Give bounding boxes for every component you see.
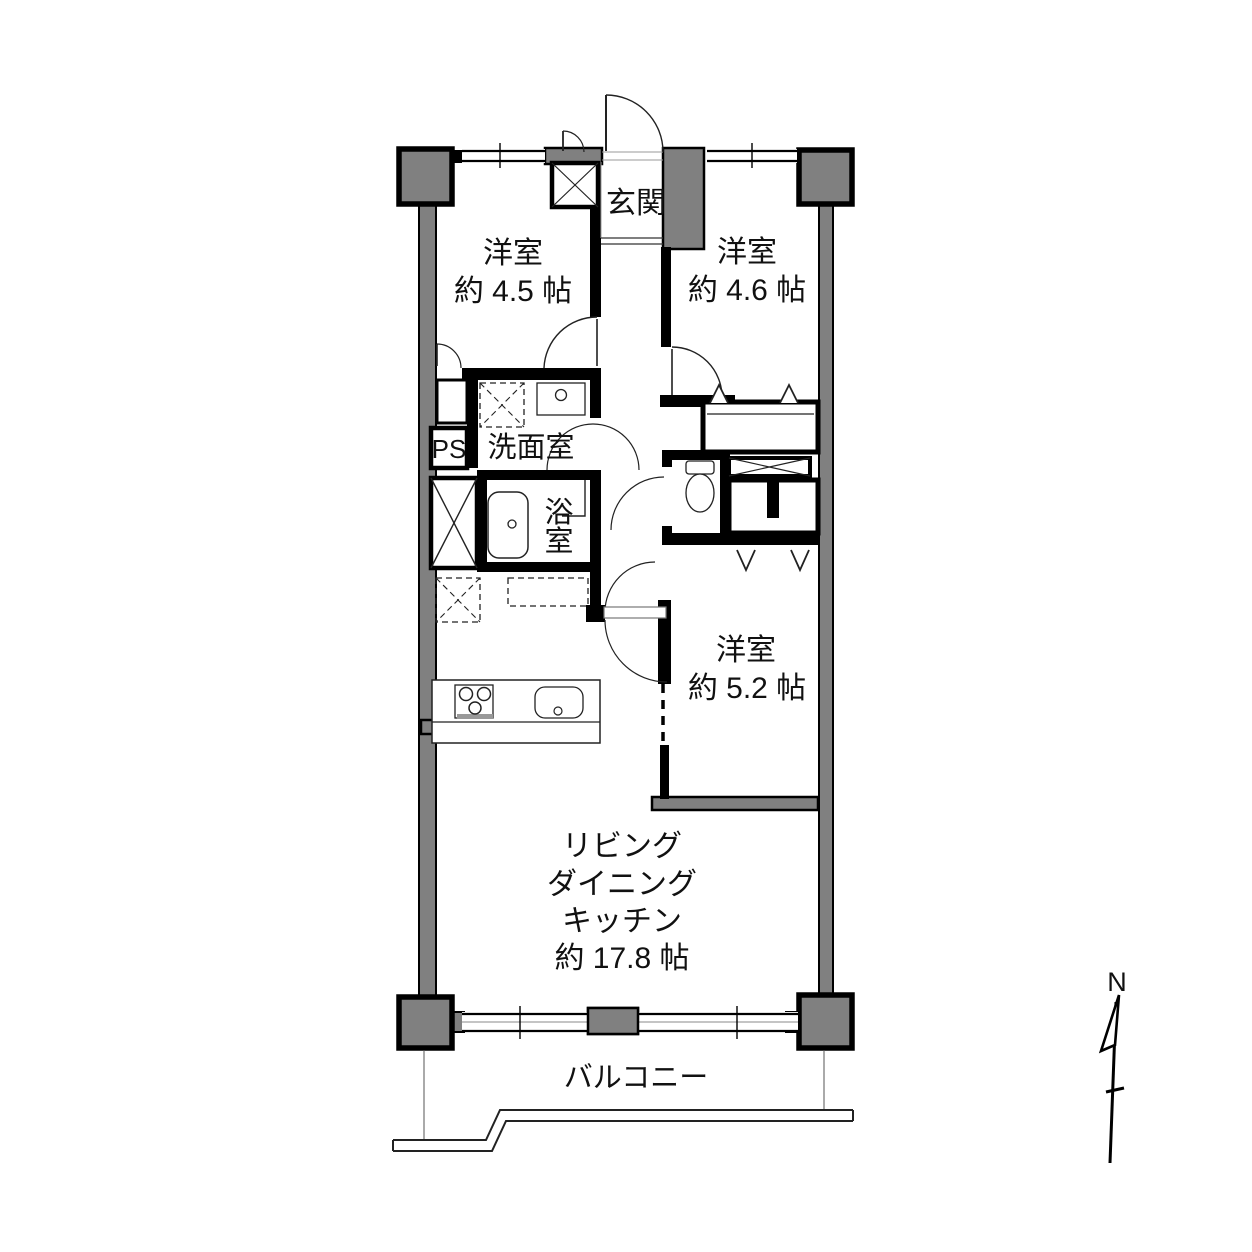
- cupboard-space: [508, 578, 588, 606]
- washbasin-icon: [537, 383, 585, 415]
- entrance: [552, 95, 663, 244]
- folding-door-mark: [737, 550, 755, 570]
- label-pipe-space: PS: [432, 434, 467, 464]
- kitchen-sink-icon: [535, 687, 583, 718]
- label-bedroom1-name: 洋室: [483, 237, 543, 270]
- door-arc-toilet: [611, 477, 664, 530]
- toilet-icon: [686, 461, 714, 512]
- wall-right: [819, 197, 833, 1000]
- label-bedroom2-size: 約 4.6 帖: [688, 274, 806, 307]
- label-bedroom1-size: 約 4.5 帖: [454, 275, 572, 308]
- door-arc-ldk-lower: [605, 620, 667, 682]
- door-arc-bedroom2: [672, 347, 722, 397]
- label-bathroom-top: 浴: [544, 497, 573, 529]
- closet-divider: [767, 480, 779, 518]
- washing-machine-pan-icon: [480, 383, 524, 427]
- door-arc-ldk-upper: [605, 562, 655, 612]
- label-genkan: 玄関: [606, 187, 666, 220]
- label-ldk-line1: リビング: [562, 830, 682, 863]
- folding-door-mark: [710, 385, 728, 403]
- door-arc-storage: [437, 344, 461, 368]
- storage-box: [437, 380, 467, 423]
- room-labels: 玄関 洋室 約 4.5 帖 洋室 約 4.6 帖 洗面室 PS 浴 室 洋室 約…: [432, 187, 807, 1094]
- folding-door-mark: [780, 385, 798, 403]
- label-ldk-line3: キッチン: [562, 905, 682, 938]
- label-ldk-line4: 約 17.8 帖: [554, 942, 689, 975]
- compass-label: N: [1107, 967, 1127, 997]
- label-bathroom-bottom: 室: [544, 525, 573, 558]
- window-balcony: [462, 1006, 798, 1039]
- window-top-right: [707, 143, 797, 168]
- label-ldk-line2: ダイニング: [547, 868, 697, 901]
- label-washroom: 洗面室: [487, 431, 574, 464]
- compass-north-icon: N: [1101, 967, 1127, 1163]
- refrigerator-space: [436, 578, 480, 622]
- pillar-bottom-left: [399, 997, 452, 1048]
- stove-icon: [455, 685, 493, 719]
- door-arc-bedroom1: [544, 317, 597, 368]
- closet-bedroom2: [703, 402, 818, 452]
- ldk-door-leaf: [604, 607, 666, 618]
- wall-genkan-east: [663, 148, 704, 249]
- pillar-bottom-right: [799, 995, 852, 1048]
- floor-plan-svg: N 玄関 洋室 約 4.5 帖 洋室 約 4.6 帖 洗面室 PS 浴 室 洋室…: [0, 0, 1252, 1252]
- pillar-top-right: [799, 150, 852, 204]
- window-top-left: [462, 143, 545, 168]
- label-balcony: バルコニー: [564, 1062, 708, 1094]
- kitchen: [432, 578, 600, 743]
- label-bedroom3-name: 洋室: [716, 634, 776, 667]
- bathtub-icon: [488, 492, 528, 558]
- floor-plan-page: N 玄関 洋室 約 4.5 帖 洋室 約 4.6 帖 洗面室 PS 浴 室 洋室…: [0, 0, 1252, 1252]
- wall-left: [419, 197, 436, 1002]
- pillar-top-left: [399, 149, 452, 204]
- wall-bedroom3-south: [652, 797, 818, 810]
- entrance-door-arc: [606, 95, 663, 152]
- label-bedroom3-size: 約 5.2 帖: [688, 672, 806, 705]
- label-bedroom2-name: 洋室: [717, 236, 777, 269]
- folding-door-mark: [791, 550, 809, 570]
